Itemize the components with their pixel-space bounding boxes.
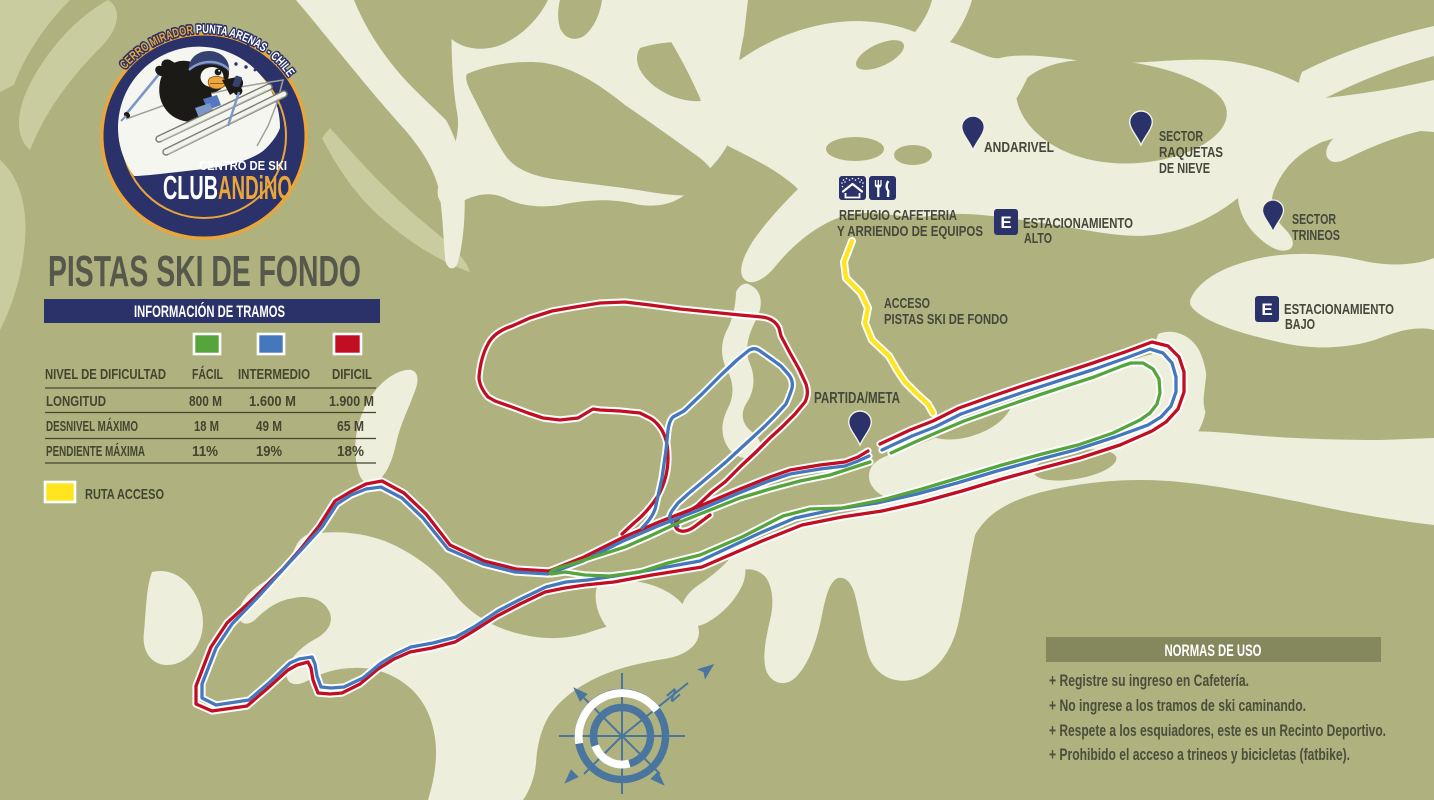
svg-text:ANDARIVEL: ANDARIVEL (984, 139, 1054, 156)
svg-text:REFUGIO CAFETERIA: REFUGIO CAFETERIA (839, 207, 957, 224)
svg-text:DE NIEVE: DE NIEVE (1159, 160, 1210, 177)
svg-text:18 M: 18 M (194, 418, 219, 435)
svg-text:SECTOR: SECTOR (1159, 128, 1203, 145)
svg-text:E: E (1000, 213, 1011, 232)
svg-text:11%: 11% (192, 443, 218, 460)
svg-text:1.600 M: 1.600 M (249, 393, 296, 410)
svg-text:ACCESO: ACCESO (884, 295, 930, 312)
svg-text:INTERMEDIO: INTERMEDIO (238, 366, 310, 383)
svg-text:LONGITUD: LONGITUD (46, 393, 106, 410)
svg-text:DESNIVEL MÁXIMO: DESNIVEL MÁXIMO (46, 418, 138, 435)
svg-text:CLUB: CLUB (163, 169, 218, 206)
svg-text:NIVEL DE DIFICULTAD: NIVEL DE DIFICULTAD (45, 366, 166, 383)
svg-text:SECTOR: SECTOR (1292, 211, 1336, 228)
svg-text:+ Prohibido el acceso a trineo: + Prohibido el acceso a trineos y bicicl… (1049, 745, 1350, 764)
svg-text:ALTO: ALTO (1024, 230, 1052, 247)
svg-text:E: E (1261, 300, 1272, 319)
svg-text:FÁCIL: FÁCIL (192, 366, 223, 383)
svg-text:ANDiNO: ANDiNO (218, 169, 292, 206)
svg-text:BAJO: BAJO (1285, 316, 1315, 333)
svg-text:TRINEOS: TRINEOS (1292, 227, 1340, 244)
svg-text:49 M: 49 M (256, 418, 282, 435)
svg-text:+ Registre su ingreso en Cafet: + Registre su ingreso en Cafetería. (1049, 671, 1249, 690)
svg-text:+ Respete a los esquiadores, e: + Respete a los esquiadores, este es un … (1049, 721, 1386, 740)
svg-text:PISTAS SKI DE FONDO: PISTAS SKI DE FONDO (884, 311, 1008, 328)
svg-text:DIFICIL: DIFICIL (332, 366, 372, 383)
svg-text:18%: 18% (337, 443, 364, 460)
svg-text:RAQUETAS: RAQUETAS (1159, 144, 1223, 161)
svg-text:PISTAS SKI DE FONDO: PISTAS SKI DE FONDO (48, 247, 361, 296)
svg-text:INFORMACIÓN DE TRAMOS: INFORMACIÓN DE TRAMOS (134, 302, 285, 321)
svg-text:19%: 19% (256, 443, 282, 460)
svg-text:PENDIENTE MÁXIMA: PENDIENTE MÁXIMA (46, 443, 145, 460)
svg-text:RUTA ACCESO: RUTA ACCESO (85, 486, 164, 503)
svg-text:Y ARRIENDO DE EQUIPOS: Y ARRIENDO DE EQUIPOS (837, 223, 983, 240)
svg-text:65 M: 65 M (337, 418, 364, 435)
svg-text:NORMAS DE USO: NORMAS DE USO (1165, 641, 1262, 660)
svg-text:PARTIDA/META: PARTIDA/META (814, 390, 900, 407)
svg-text:+ No ingrese a los tramos de s: + No ingrese a los tramos de ski caminan… (1049, 696, 1306, 715)
svg-text:800 M: 800 M (189, 393, 222, 410)
svg-text:1.900 M: 1.900 M (329, 393, 374, 410)
